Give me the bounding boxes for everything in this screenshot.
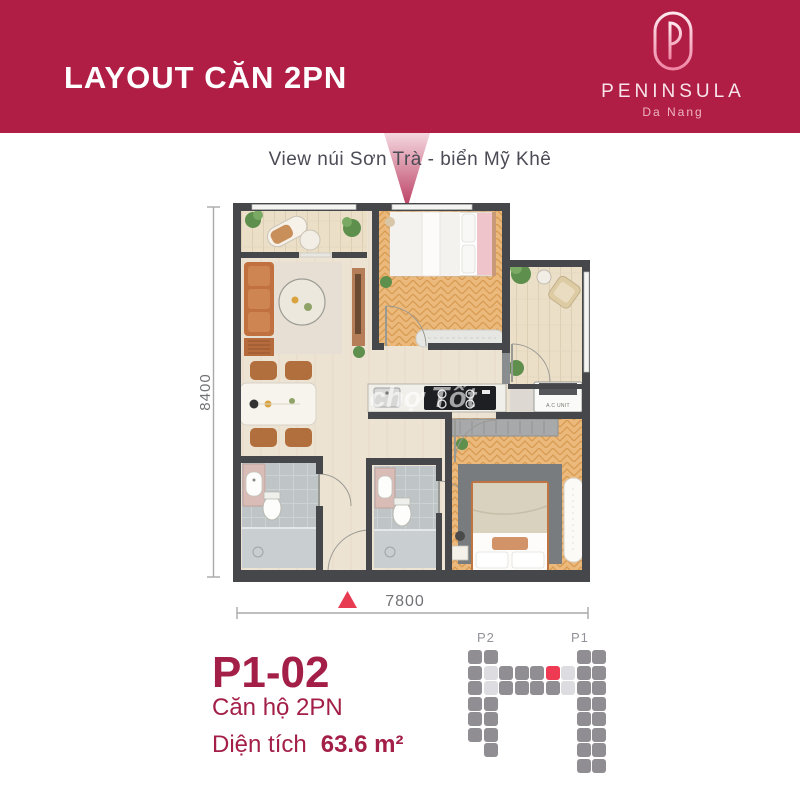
unit-cell <box>499 681 513 695</box>
unit-cell <box>592 666 606 680</box>
empty-cell <box>561 712 575 726</box>
unit-cell <box>561 681 575 695</box>
empty-cell <box>546 650 560 664</box>
empty-cell <box>515 697 529 711</box>
empty-cell <box>561 743 575 757</box>
unit-cell <box>577 743 591 757</box>
unit-cell <box>468 681 482 695</box>
unit-cell <box>592 759 606 773</box>
empty-cell <box>499 712 513 726</box>
brand-name: PENINSULA <box>598 81 748 103</box>
shower2-area <box>374 530 438 568</box>
unit-cell <box>592 712 606 726</box>
empty-cell <box>515 712 529 726</box>
empty-cell <box>546 743 560 757</box>
unit-cell <box>484 728 498 742</box>
unit-cell <box>577 759 591 773</box>
unit-code: P1-02 <box>212 648 329 698</box>
brand-location: Da Nang <box>598 105 748 119</box>
area-label: Diện tích <box>212 731 307 758</box>
view-cone <box>384 133 430 209</box>
unit-cell <box>592 650 606 664</box>
empty-cell <box>530 728 544 742</box>
unit-cell <box>577 728 591 742</box>
unit-cell <box>468 697 482 711</box>
tower-label-p1: P1 <box>571 630 589 645</box>
area-value: 63.6 m² <box>321 731 404 758</box>
entrance-marker-triangle <box>338 591 357 608</box>
view-direction-label: View núi Sơn Trà - biển Mỹ Khê <box>230 149 590 171</box>
empty-cell <box>561 759 575 773</box>
empty-cell <box>468 759 482 773</box>
dimension-width: 7800 <box>237 593 588 619</box>
empty-cell <box>515 759 529 773</box>
unit-cell <box>484 712 498 726</box>
unit-cell <box>484 697 498 711</box>
dim-height-label: 8400 <box>197 373 214 410</box>
unit-cell <box>515 666 529 680</box>
unit-cell <box>484 743 498 757</box>
tower-label-p2: P2 <box>477 630 495 645</box>
empty-cell <box>499 759 513 773</box>
empty-cell <box>546 697 560 711</box>
unit-cell <box>561 666 575 680</box>
empty-cell <box>515 650 529 664</box>
unit-cell <box>515 681 529 695</box>
unit-cell <box>592 728 606 742</box>
empty-cell <box>530 759 544 773</box>
empty-cell <box>546 712 560 726</box>
empty-cell <box>499 697 513 711</box>
empty-cell <box>499 650 513 664</box>
unit-cell <box>577 681 591 695</box>
unit-cell <box>592 743 606 757</box>
unit-type-label: Căn hộ 2PN <box>212 694 343 722</box>
dimension-height: 8400 <box>197 207 220 577</box>
empty-cell <box>499 743 513 757</box>
ac-unit-label: A.C UNIT <box>546 403 570 409</box>
empty-cell <box>499 728 513 742</box>
unit-cell <box>592 681 606 695</box>
empty-cell <box>546 759 560 773</box>
building-diagram <box>468 650 606 773</box>
header-banner: LAYOUT CĂN 2PN PENINSULA Da Nang <box>0 0 800 133</box>
unit-cell <box>468 712 482 726</box>
unit-cell <box>499 666 513 680</box>
empty-cell <box>530 712 544 726</box>
unit-cell <box>577 666 591 680</box>
watermark: chợ Tốt <box>338 382 508 415</box>
flyer-canvas: LAYOUT CĂN 2PN PENINSULA Da Nang View nú… <box>0 0 800 800</box>
unit-cell <box>484 650 498 664</box>
empty-cell <box>530 650 544 664</box>
brand-monogram-icon <box>650 10 696 72</box>
empty-cell <box>515 743 529 757</box>
unit-cell <box>577 712 591 726</box>
unit-cell <box>484 666 498 680</box>
unit-cell <box>468 666 482 680</box>
empty-cell <box>515 728 529 742</box>
unit-cell <box>577 650 591 664</box>
unit-area: Diện tích63.6 m² <box>212 731 403 759</box>
highlighted-unit-cell <box>546 666 560 680</box>
unit-cell <box>468 650 482 664</box>
empty-cell <box>546 728 560 742</box>
empty-cell <box>530 697 544 711</box>
empty-cell <box>561 650 575 664</box>
empty-cell <box>468 743 482 757</box>
brand-logo: PENINSULA Da Nang <box>598 10 748 119</box>
unit-cell <box>592 697 606 711</box>
unit-cell <box>530 666 544 680</box>
unit-cell <box>530 681 544 695</box>
empty-cell <box>561 728 575 742</box>
unit-cell <box>577 697 591 711</box>
unit-cell <box>484 681 498 695</box>
empty-cell <box>530 743 544 757</box>
unit-cell <box>468 728 482 742</box>
dim-width-label: 7800 <box>385 593 425 610</box>
page-title: LAYOUT CĂN 2PN <box>64 60 347 96</box>
shower1-area <box>242 528 318 568</box>
empty-cell <box>484 759 498 773</box>
unit-cell <box>546 681 560 695</box>
empty-cell <box>561 697 575 711</box>
